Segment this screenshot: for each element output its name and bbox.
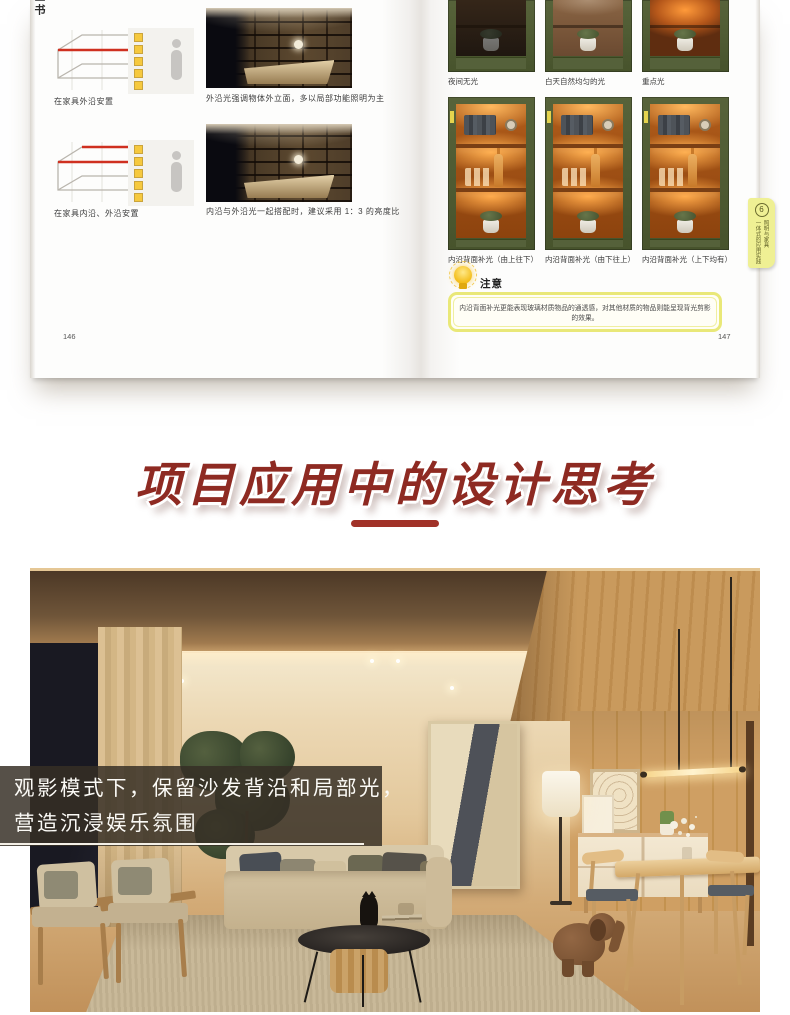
photo-caption-overlay: 观影模式下，保留沙发背沿和局部光， 营造沉浸娱乐氛围 [0, 766, 382, 846]
glass-cups [465, 168, 491, 185]
cabinet-door [456, 239, 526, 247]
downlight [450, 686, 454, 690]
desk-lamp-glow [294, 155, 303, 164]
bottle [494, 154, 503, 188]
armchair-seat [108, 903, 188, 923]
plant-pot [677, 220, 693, 233]
page-number-right: 147 [718, 332, 731, 341]
note-title: 注意 [480, 276, 503, 291]
page-number-left: 146 [63, 332, 76, 341]
armchair-pillow [118, 867, 152, 895]
pendant-wire [730, 577, 732, 771]
light-strip-stack [134, 33, 143, 90]
cabinet-caption: 内沿背面补光（由下往上） [545, 254, 635, 265]
cabinet-photo-backlit-bottom-up [545, 97, 632, 250]
cabinet-caption: 重点光 [642, 76, 665, 87]
book-edge-title: 全书 [31, 0, 47, 18]
sideboard-leg [698, 897, 702, 913]
plant-pot [580, 220, 596, 233]
round-ornament [505, 119, 517, 131]
cabinet-door [553, 57, 623, 69]
bookshelf-room-photo [206, 8, 352, 88]
light-strip-stack [134, 145, 143, 202]
yellow-tag [547, 111, 551, 123]
desk-shape [244, 175, 335, 198]
downlight [370, 659, 374, 663]
armchair-leg [116, 923, 121, 983]
coffee-table-leg [362, 955, 364, 1007]
cabinet-photo-daylight [545, 0, 632, 72]
cabinet-interior-backlit [456, 104, 526, 238]
cabinet-caption: 夜间无光 [448, 76, 478, 87]
plant-pot [483, 38, 499, 51]
round-ornament [602, 119, 614, 131]
lightbulb-icon [454, 266, 472, 284]
cabinet-door [553, 239, 623, 247]
section-headline: 项目应用中的设计思考 [0, 446, 790, 515]
table-books [382, 914, 422, 923]
chapter-tab-line: 一体式的应用实践 [755, 220, 761, 264]
plant-pot [677, 38, 693, 51]
armchair-seat [32, 907, 110, 927]
pendant-wire [678, 629, 680, 771]
bottle [688, 154, 697, 188]
cabinet-photo-night [448, 0, 535, 72]
cabinet-caption: 内沿背面补光（上下均有） [642, 254, 732, 265]
table-leg [680, 875, 684, 1005]
ceiling-light-glow [206, 8, 352, 18]
chapter-number: 6 [755, 203, 769, 217]
chapter-tab: 6 照明与家具 一体式的应用实践 [748, 198, 775, 268]
caption-underline [0, 843, 364, 845]
downlight [396, 659, 400, 663]
chair-leg [714, 896, 718, 954]
plant-pot [483, 220, 499, 233]
note-box: 内沿背面补光更能表现玻璃材质物品的通透感，对其他材质的物品则能呈现背光剪影的效果… [448, 292, 722, 332]
flower-bouquet [670, 821, 678, 829]
glass-decor [398, 903, 414, 915]
cabinet-interior-backlit [553, 104, 623, 238]
cabinet-interior-daylight [553, 0, 623, 56]
cabinet-door [650, 239, 720, 247]
bottle [591, 154, 600, 188]
book-left-edge [30, 0, 36, 378]
books [561, 115, 593, 135]
yellow-tag [644, 111, 648, 123]
chapter-tab-text: 照明与家具 一体式的应用实践 [754, 220, 770, 266]
diagram-caption: 在家具外沿安置 [54, 96, 114, 107]
photo-caption: 外沿光强调物体外立面，多以局部功能照明为主 [206, 93, 385, 104]
armchair-pillow [44, 871, 78, 899]
person-icon [171, 151, 182, 192]
cabinet-photo-backlit-both [642, 97, 729, 250]
round-ornament [699, 119, 711, 131]
book-spread: 全书 在家具外沿安置 外沿光强调物体外立面，多以局部功能照明为主 [30, 0, 760, 378]
ceiling-light-glow [206, 124, 352, 134]
person-icon [171, 39, 182, 80]
cabinet-caption: 白天自然均匀的光 [545, 76, 605, 87]
plant-pot [580, 38, 596, 51]
headline-underline [351, 520, 439, 527]
cabinet-door [650, 57, 720, 69]
caption-line-2: 营造沉浸娱乐氛围 [14, 806, 382, 841]
bookshelf-room-photo [206, 124, 352, 202]
section-strip-panel [128, 28, 194, 94]
desk-lamp-glow [294, 40, 303, 49]
floor-lamp-pole [559, 817, 562, 903]
photo-caption: 内沿与外沿光一起搭配时，建议采用 1：3 的亮度比 [206, 206, 400, 217]
elephant-leg [582, 961, 594, 977]
sofa-armrest [426, 857, 452, 927]
books [658, 115, 690, 135]
diagram-caption: 在家具内沿、外沿安置 [54, 208, 139, 219]
books [464, 115, 496, 135]
cabinet-door [456, 57, 526, 69]
armchair-leg [38, 927, 43, 985]
cabinet-photo-accent-light [642, 0, 729, 72]
cabinet-interior-dark [456, 0, 526, 56]
chapter-tab-line: 照明与家具 [763, 220, 769, 248]
cabinet-photo-backlit-top-down [448, 97, 535, 250]
note-body: 内沿背面补光更能表现玻璃材质物品的通透感，对其他材质的物品则能呈现背光剪影的效果… [451, 302, 719, 322]
page-canvas: 全书 在家具外沿安置 外沿光强调物体外立面，多以局部功能照明为主 [0, 0, 790, 1015]
section-strip-panel [128, 140, 194, 206]
book-right-edge [755, 0, 760, 378]
floor-lamp-shade [542, 771, 580, 817]
caption-line-1: 观影模式下，保留沙发背沿和局部光， [14, 771, 382, 806]
art-frame-small [582, 795, 614, 835]
yellow-tag [450, 111, 454, 123]
cabinet-interior-backlit [650, 104, 720, 238]
cabinet-interior-accent [650, 0, 720, 56]
elephant-leg [562, 959, 574, 977]
glass-cups [659, 168, 685, 185]
glass-cups [562, 168, 588, 185]
floor-lamp-base [550, 901, 572, 905]
armchair-leg [100, 923, 109, 979]
coffee-table-base [330, 949, 388, 993]
cat-figurine [360, 895, 378, 927]
desk-shape [244, 60, 335, 84]
elephant-ear [590, 919, 606, 941]
